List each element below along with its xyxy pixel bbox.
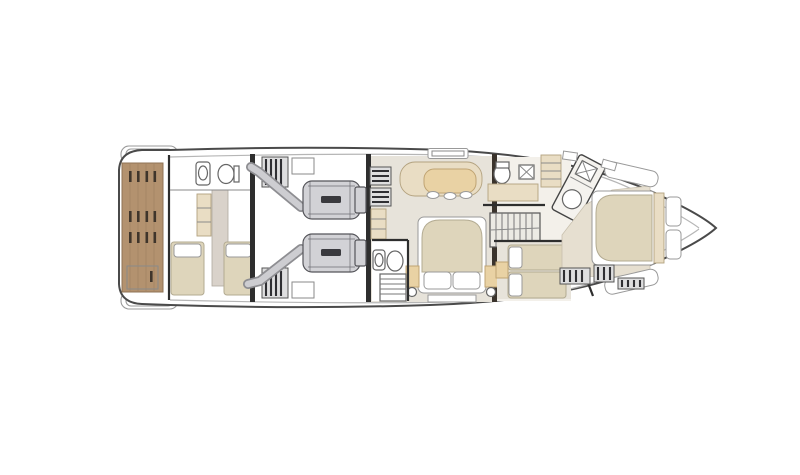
vip-vent-grille-left (560, 268, 590, 284)
master-pillow-left (424, 272, 451, 289)
twin-nightstand (496, 262, 508, 278)
deck-hatch-top (428, 149, 468, 159)
master-cabin (370, 149, 498, 303)
crew-toilet-tank (234, 166, 239, 182)
master-stool-1 (427, 192, 439, 199)
crew-bed-port (171, 242, 204, 295)
engine-port-gearbox (355, 187, 366, 213)
master-ladder (380, 274, 406, 301)
engine-starboard (303, 234, 366, 272)
master-sofa-dinette (400, 162, 482, 200)
crew-toilet (218, 165, 234, 184)
master-toilet (387, 251, 403, 271)
vip-headboard (654, 193, 664, 263)
engine-port-label (321, 196, 341, 203)
master-stool-3 (460, 192, 472, 199)
engine-starboard-label (321, 249, 341, 256)
master-bed (406, 217, 498, 302)
master-table (424, 169, 476, 193)
deck-hatch-bow-1 (563, 151, 578, 161)
crew-closet (197, 194, 211, 236)
engine-starboard-gearbox (355, 240, 366, 266)
twin-bed-lower-pillow (509, 274, 522, 296)
master-pillow-right (453, 272, 480, 289)
twin-bed-lower (508, 272, 566, 298)
vip-bed-mattress (596, 195, 652, 261)
vip-vent-grille-mid (594, 265, 614, 282)
master-stool-2 (444, 193, 456, 200)
crew-bed-starboard-pillow (226, 244, 251, 257)
crew-sink-bowl (199, 166, 208, 180)
master-bench (428, 295, 476, 302)
floorplan-drawing (0, 0, 800, 475)
master-shelves (371, 209, 386, 239)
twin-bed-upper-pillow (509, 247, 522, 268)
master-sink-bowl (375, 254, 383, 267)
master-lamp-right (487, 288, 496, 297)
day-head-toilet-tank (496, 162, 509, 168)
day-head-mat (488, 184, 538, 201)
platform-hatch-slot (150, 271, 153, 282)
vip-headboard-panel-top (666, 197, 681, 226)
vip-vent-grille-fwd (618, 278, 644, 289)
master-bed-mattress (422, 220, 482, 272)
swim-platform (122, 163, 163, 292)
twin-bed-upper (508, 245, 566, 270)
teak-deck (122, 163, 163, 292)
vip-headboard-panel-bottom (666, 230, 681, 259)
crew-bed-port-pillow (174, 244, 201, 257)
engine-port (303, 181, 366, 219)
yacht-floorplan (0, 0, 800, 475)
